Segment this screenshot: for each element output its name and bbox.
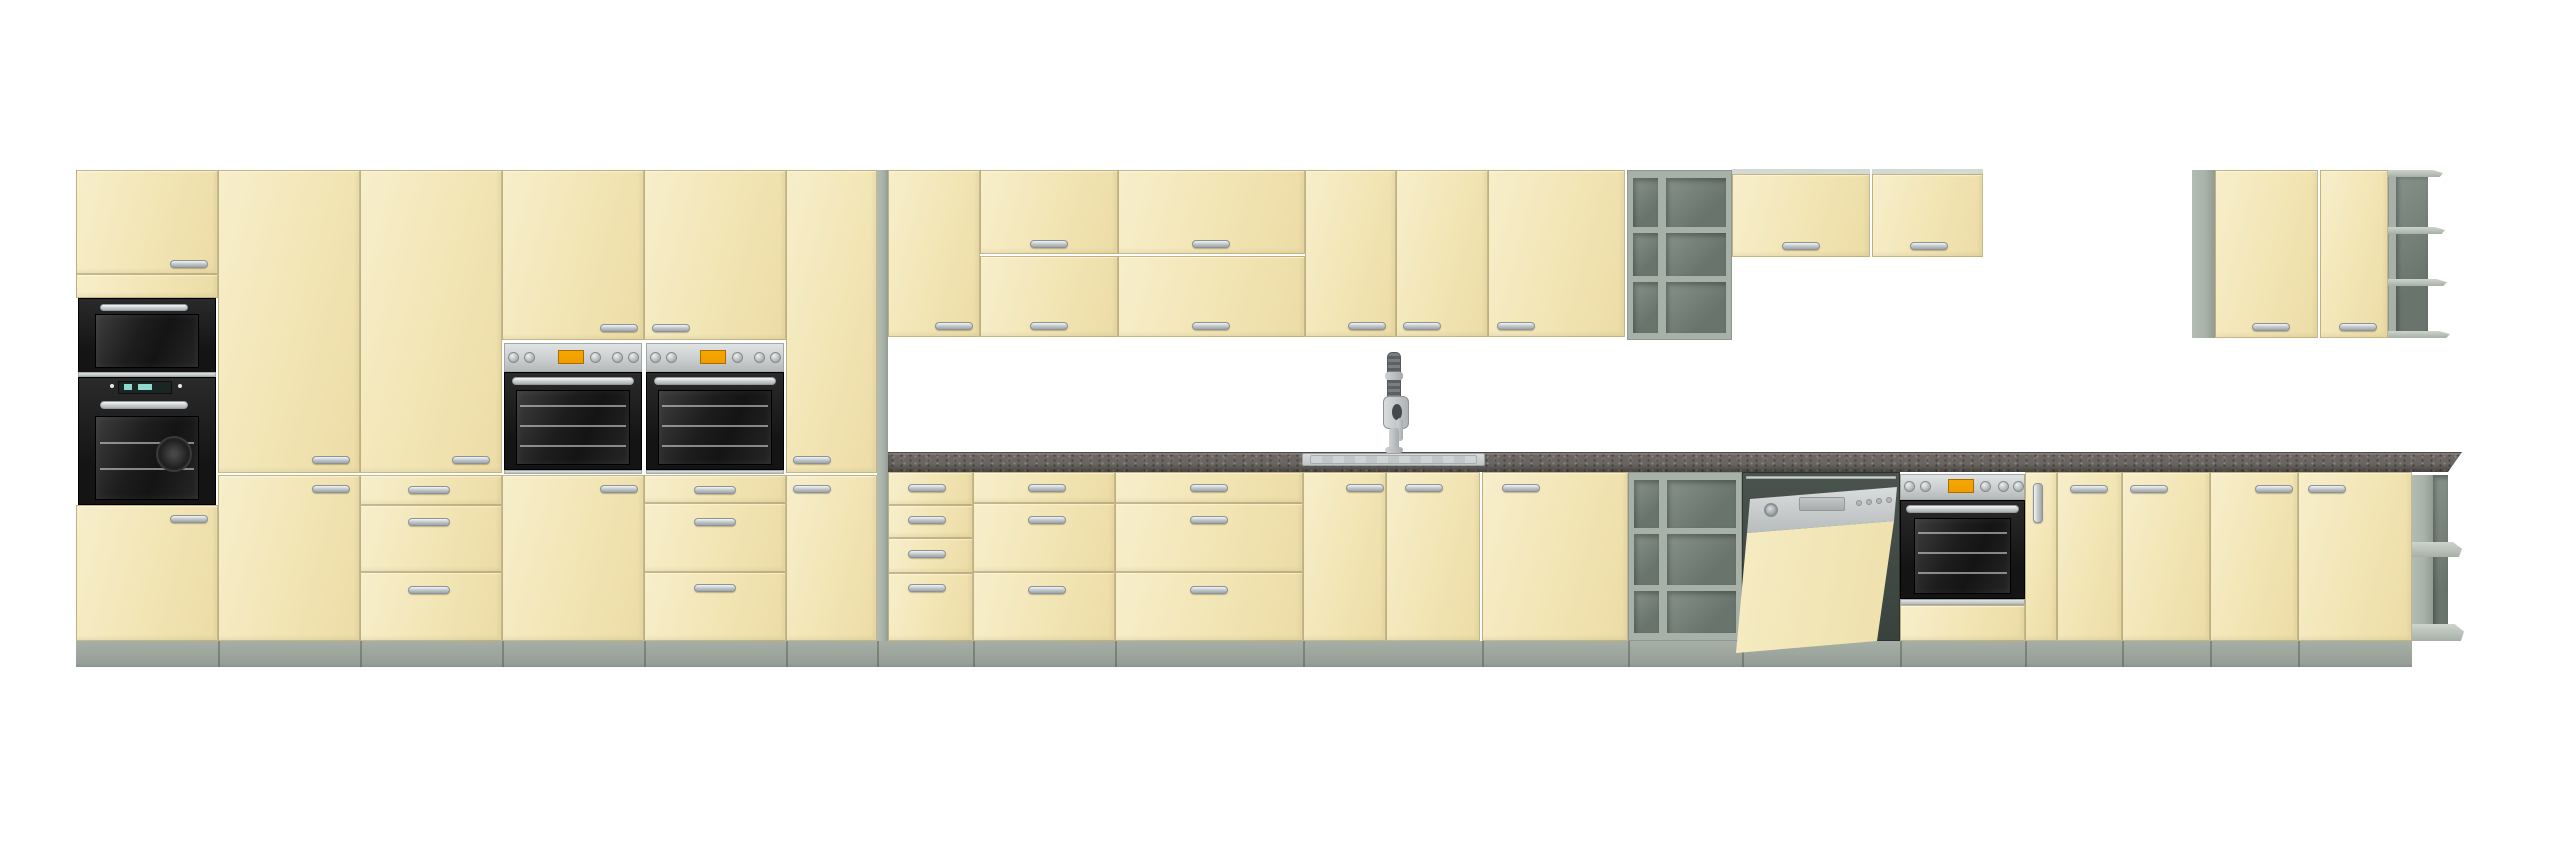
oven-rack: [662, 445, 768, 447]
wall-open-shelf-cell: [1666, 282, 1726, 333]
tall-larder-lower-door: [218, 475, 360, 641]
drawer-handle: [1028, 516, 1066, 524]
oven-knob: [2013, 481, 2024, 492]
corner-wall-unit-shelf-board: [2388, 331, 2450, 338]
plinth-seam: [1900, 641, 1902, 667]
plinth-seam: [877, 641, 879, 667]
oven-knob: [508, 352, 519, 363]
base-open-shelf-cell: [1667, 480, 1736, 528]
oven-window: [1914, 518, 2011, 594]
oven-rack: [520, 425, 626, 427]
oven-knob: [1904, 481, 1915, 492]
base-cabinet-door: [2210, 472, 2298, 641]
door-handle: [1192, 240, 1230, 248]
sink-drainer: [1310, 455, 1477, 464]
wall-open-shelf-cell: [1633, 282, 1658, 333]
microwave-handle-bar: [100, 304, 188, 311]
corner-wall-unit-door: [2215, 170, 2318, 338]
drawer-front: [973, 503, 1115, 572]
oven-knob: [1998, 481, 2009, 492]
door-handle: [2130, 485, 2168, 493]
oven-knob: [628, 352, 639, 363]
oven-knob: [1920, 481, 1931, 492]
door-handle: [793, 485, 831, 493]
plinth-seam: [1115, 641, 1117, 667]
drawer-front: [973, 572, 1115, 641]
drawer-front: [644, 572, 786, 641]
oven-knob: [524, 352, 535, 363]
drawer-handle: [1190, 516, 1228, 524]
dishwasher-knob: [1764, 503, 1778, 517]
wall-cabinet-door: [888, 170, 980, 337]
oven-handle-bar: [654, 377, 776, 385]
drawer-front: [360, 505, 502, 572]
plinth-seam: [2122, 641, 2124, 667]
wall-cabinet-door: [1305, 170, 1396, 337]
door-handle: [1497, 322, 1535, 330]
door-handle: [452, 456, 490, 464]
door-handle: [1030, 322, 1068, 330]
tall-cabinet-upper-door: [786, 170, 877, 473]
wall-open-shelf-cell: [1633, 178, 1658, 227]
oven-display-orange: [700, 350, 726, 364]
door-handle: [312, 485, 350, 493]
base-cabinet-door: [2298, 472, 2412, 641]
plinth-seam: [218, 641, 220, 667]
oven-handle-bar: [512, 377, 634, 385]
door-handle: [1502, 484, 1540, 492]
base-open-shelf-cell: [1634, 591, 1659, 633]
oven-knob: [612, 352, 623, 363]
oven-knob: [1980, 481, 1991, 492]
base-open-shelf-cell: [1634, 480, 1659, 528]
tall-oven-column-top-door: [76, 170, 218, 274]
oven-display-orange: [1948, 479, 1974, 493]
plinth-seam: [360, 641, 362, 667]
door-handle: [2339, 323, 2377, 331]
wall-open-shelf-cell: [1633, 233, 1658, 276]
oven-rack: [1918, 532, 2007, 534]
drawer-handle: [908, 516, 946, 524]
wall-open-shelf-cell: [1666, 178, 1726, 227]
corner-wall-unit-side-panel: [2192, 170, 2215, 338]
drawer-handle: [908, 584, 946, 592]
base-cabinet-door: [2057, 472, 2122, 641]
drawer-handle: [1190, 586, 1228, 594]
oven-rack: [520, 445, 626, 447]
drawer-front: [1115, 572, 1303, 641]
door-handle: [2252, 323, 2290, 331]
dishwasher-button: [1866, 499, 1872, 505]
base-end-shelf-interior: [2433, 475, 2448, 641]
corner-wall-unit-shelf-interior: [2396, 174, 2428, 332]
plinth-seam: [1628, 641, 1630, 667]
microwave-window: [95, 314, 199, 368]
door-handle: [2255, 485, 2293, 493]
drawer-handle: [908, 484, 946, 492]
dishwasher-rail: [1746, 476, 1896, 479]
oven-window: [658, 390, 772, 465]
plinth-seam: [786, 641, 788, 667]
drawer-front: [644, 503, 786, 572]
oven-window: [516, 390, 630, 465]
oven-rack: [1918, 572, 2007, 574]
wall-cabinet-door: [1396, 170, 1488, 337]
tall-oven-column-filler: [76, 274, 218, 298]
plinth-seam: [502, 641, 504, 667]
door-handle: [1782, 242, 1820, 250]
base-cabinet-door: [1482, 472, 1628, 641]
oven-housing-top-door: [644, 170, 786, 340]
corner-wall-unit-shelf-board: [2388, 279, 2447, 286]
plinth-seam: [973, 641, 975, 667]
tall-oven-column-bottom-door: [76, 505, 218, 641]
door-handle: [170, 515, 208, 523]
oven-knob: [770, 352, 781, 363]
drawer-handle: [1028, 484, 1066, 492]
door-handle: [1405, 484, 1443, 492]
plinth-seam: [1482, 641, 1484, 667]
oven-rack: [520, 405, 626, 407]
plinth-seam: [2210, 641, 2212, 667]
oven-handle-bar: [100, 401, 188, 409]
base-open-shelf-cell: [1634, 534, 1659, 585]
plinth: [76, 641, 2412, 667]
oven-fan: [156, 436, 192, 472]
wall-cabinet-door: [1488, 170, 1625, 337]
door-handle: [1192, 322, 1230, 330]
door-handle: [1346, 484, 1384, 492]
plinth-seam: [2298, 641, 2300, 667]
corner-wall-unit-shelf-board: [2388, 227, 2445, 234]
base-end-shelf-board: [2412, 542, 2462, 557]
oven-base-filler: [1900, 605, 2025, 641]
door-handle: [1030, 240, 1068, 248]
dishwasher-button: [1886, 497, 1892, 503]
door-handle: [312, 456, 350, 464]
door-handle: [170, 260, 208, 268]
dishwasher-button: [1876, 498, 1882, 504]
countertop: [888, 452, 2462, 472]
oven-display-orange: [558, 350, 584, 364]
oven-display-segment: [124, 384, 132, 390]
door-handle: [652, 324, 690, 332]
oven-knob: [732, 352, 743, 363]
faucet-base: [1385, 447, 1403, 453]
drawer-handle: [1028, 586, 1066, 594]
wall-open-shelf-cell: [1666, 233, 1726, 276]
oven-button-dot: [178, 384, 182, 388]
drawer-handle: [694, 486, 736, 494]
oven-housing-top-door: [502, 170, 644, 340]
sink-base-door: [1386, 472, 1480, 641]
door-handle: [935, 322, 973, 330]
door-handle: [1403, 322, 1441, 330]
oven-rack: [662, 405, 768, 407]
drawer-front: [1115, 503, 1303, 572]
drawer-front: [360, 572, 502, 641]
oven-button-dot: [110, 384, 114, 388]
drawer-handle: [1190, 484, 1228, 492]
oven-rack: [1918, 552, 2007, 554]
oven-knob: [754, 352, 765, 363]
faucet-collar: [1385, 372, 1403, 380]
base-open-shelf-cell: [1667, 591, 1736, 633]
door-handle: [793, 456, 831, 464]
drawer-handle: [908, 550, 946, 558]
door-handle: [1910, 242, 1948, 250]
plinth-seam: [1303, 641, 1305, 667]
drawer-handle: [408, 518, 450, 526]
corner-wall-unit-door: [2320, 170, 2388, 338]
tall-run-end-panel: [877, 170, 888, 641]
dishwasher-button: [1856, 500, 1862, 506]
oven-knob: [650, 352, 661, 363]
drawer-handle: [408, 586, 450, 594]
dishwasher-front-panel: [1733, 519, 1894, 653]
kitchen-render: [0, 0, 2560, 847]
drawer-handle: [694, 584, 736, 592]
oven-knob: [666, 352, 677, 363]
tall-larder-upper-door: [218, 170, 360, 473]
corner-wall-unit-shelf-board: [2388, 170, 2443, 177]
oven-housing-bottom-door: [502, 475, 644, 641]
base-end-shelf-board: [2412, 624, 2464, 641]
oven-knob: [590, 352, 601, 363]
oven-display-segment: [138, 384, 152, 390]
door-handle: [2308, 485, 2346, 493]
tall-cabinet-lower-door: [786, 475, 877, 641]
oven-handle-bar: [1906, 505, 2019, 513]
door-handle: [600, 485, 638, 493]
appliance-trim: [504, 470, 642, 474]
sink-base-door: [1303, 472, 1386, 641]
base-cabinet-door: [2122, 472, 2210, 641]
door-handle: [600, 324, 638, 332]
base-end-panel: [2412, 475, 2433, 641]
drawer-handle: [694, 518, 736, 526]
plinth-seam: [2025, 641, 2027, 667]
plinth-seam: [644, 641, 646, 667]
appliance-trim: [646, 470, 784, 474]
door-handle: [2070, 485, 2108, 493]
door-handle: [1348, 322, 1386, 330]
drawer-handle: [408, 486, 450, 494]
base-open-shelf-cell: [1667, 534, 1736, 585]
oven-rack: [662, 425, 768, 427]
tall-cabinet-door: [360, 170, 502, 473]
door-handle-vertical: [2033, 483, 2043, 523]
dishwasher-handle-recess: [1799, 497, 1845, 511]
